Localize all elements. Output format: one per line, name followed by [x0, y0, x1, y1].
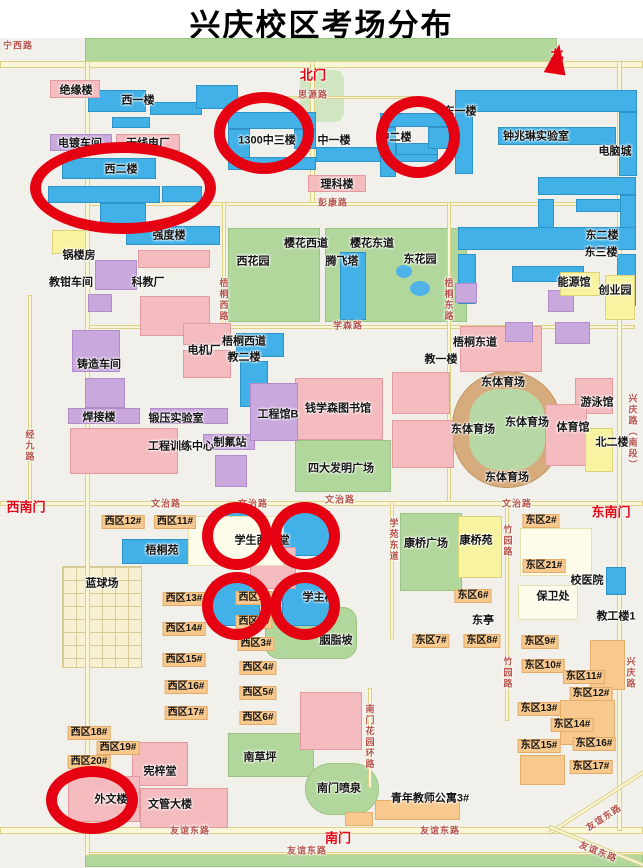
building-label: 文管大楼 [148, 800, 192, 811]
dorm-label: 东区11# [563, 670, 605, 684]
building-label: 东亭 [472, 616, 494, 627]
dorm-label: 东区13# [518, 702, 561, 716]
dorm-label: 西区19# [97, 741, 140, 755]
dorm-label: 东区16# [573, 737, 616, 751]
building-label: 科教厂 [132, 278, 165, 289]
building [132, 742, 188, 786]
dorm-label: 东区7# [412, 634, 449, 648]
building-label: 梧桐东道 [453, 338, 497, 349]
road-label: 学森路 [333, 322, 363, 331]
building-label: 东三楼 [585, 248, 618, 259]
road-label: 文治路 [325, 496, 355, 505]
road-label: 文治路 [151, 500, 181, 509]
building-label: 锻压实验室 [149, 414, 204, 425]
map-area [85, 854, 643, 867]
building-label: 腾飞塔 [326, 257, 359, 268]
building-label: 强度楼 [153, 231, 186, 242]
building-label: 东体育场 [505, 418, 549, 429]
building [576, 199, 622, 212]
building [555, 322, 590, 344]
dorm-label: 西区15# [163, 653, 206, 667]
highlight-circle [270, 502, 340, 570]
dorm-label: 东区12# [570, 687, 613, 701]
building-label: 电机厂 [188, 346, 221, 357]
building-label: 焊接楼 [83, 413, 116, 424]
building-label: 教二楼 [228, 353, 261, 364]
dorm-label: 东区2# [522, 514, 559, 528]
building-label: 康桥广场 [404, 539, 448, 550]
dorm-label: 西区4# [239, 661, 276, 675]
building [538, 177, 636, 195]
road-label: 思源路 [298, 91, 328, 100]
building [300, 692, 362, 750]
dorm-label: 西区12# [102, 515, 145, 529]
gate-label: 北门 [300, 69, 326, 82]
highlight-circle [46, 766, 138, 834]
road-label: 彭康路 [318, 199, 348, 208]
building-label: 西一楼 [122, 96, 155, 107]
road-label: 经九路 [25, 430, 34, 463]
building-label: 南草坪 [244, 753, 277, 764]
dorm-label: 东区14# [551, 718, 594, 732]
building-label: 蓝球场 [86, 579, 119, 590]
building-label: 校医院 [571, 576, 604, 587]
building [619, 112, 637, 176]
road-label: 友谊东路 [287, 847, 327, 856]
north-arrow-icon [544, 42, 570, 75]
dorm-label: 东区9# [521, 635, 558, 649]
building [605, 275, 635, 320]
dorm-label: 东区8# [463, 634, 500, 648]
building [585, 428, 613, 472]
road-label: 竹园路 [503, 525, 512, 558]
building [455, 90, 637, 112]
building-label: 能源馆 [558, 278, 591, 289]
building [545, 404, 587, 466]
building-label: 东体育场 [451, 425, 495, 436]
gate-label: 西南门 [6, 501, 45, 514]
gate-label: 东南门 [591, 506, 630, 519]
building-label: 工程馆B [258, 410, 299, 421]
dorm-label: 东区15# [518, 739, 561, 753]
dorm-label: 西区14# [163, 622, 206, 636]
building-label: 东体育场 [481, 378, 525, 389]
building-label: 西花园 [237, 257, 270, 268]
building [88, 294, 112, 312]
road-label: 宁西路 [3, 42, 33, 51]
building-label: 东二楼 [586, 231, 619, 242]
highlight-circle [214, 92, 314, 174]
dorm-label: 东区10# [522, 659, 565, 673]
building [606, 567, 626, 595]
building-label: 中一楼 [318, 136, 351, 147]
road-label: 兴庆路（南段） [628, 394, 637, 471]
building-label: 钱学森图书馆 [305, 404, 371, 415]
building [505, 322, 533, 342]
highlight-circle [270, 572, 340, 640]
map-area [410, 281, 430, 296]
campus-map: 绝缘楼西一楼电镀车间无线电厂1300中三楼中一楼中二楼东一楼钟兆琳实验室电脑城西… [0, 38, 643, 868]
building-label: 东花园 [404, 255, 437, 266]
building-label: 锅楼房 [63, 251, 96, 262]
road-label: 文治路 [502, 500, 532, 509]
building [392, 420, 454, 468]
building [458, 516, 502, 578]
building-label: 南门喷泉 [317, 784, 361, 795]
dorm-label: 东区6# [454, 589, 491, 603]
building-label: 东体育场 [485, 473, 529, 484]
building-label: 胭脂坡 [320, 636, 353, 647]
dorm-label: 西区18# [68, 726, 111, 740]
building-label: 制氟站 [214, 438, 247, 449]
building-label: 樱花西道 [284, 239, 328, 250]
road-label: 梧桐东路 [444, 278, 453, 322]
building [85, 378, 125, 408]
building-label: 四大发明广场 [308, 464, 374, 475]
road-label: 友谊东路 [420, 827, 460, 836]
building-label: 青年教师公寓3# [391, 794, 469, 805]
dorm-label: 西区13# [163, 592, 206, 606]
gate-label: 南门 [325, 832, 351, 845]
building-label: 工程训练中心 [148, 442, 214, 453]
building-label: 教钳车间 [49, 278, 93, 289]
building-label: 梧桐苑 [146, 546, 179, 557]
building [150, 102, 202, 115]
building-label: 体育馆 [557, 423, 590, 434]
dorm-label: 西区11# [154, 515, 196, 529]
building-label: 北二楼 [596, 438, 629, 449]
building-label: 电脑城 [599, 147, 632, 158]
building-label: 创业园 [599, 286, 632, 297]
dorm-label: 东区17# [570, 760, 613, 774]
map-area [396, 265, 412, 278]
building-label: 康桥苑 [460, 536, 493, 547]
road-label: 学苑东道 [389, 518, 398, 562]
highlight-circle [376, 96, 460, 178]
building-label: 樱花东道 [350, 239, 394, 250]
building-label: 钟兆琳实验室 [503, 132, 569, 143]
building-label: 铸造车间 [77, 360, 121, 371]
road-label: 梧桐西路 [219, 278, 228, 322]
building [520, 755, 565, 785]
building-label: 绝缘楼 [60, 86, 93, 97]
map-area [400, 513, 462, 591]
road-label: 友谊东路 [170, 827, 210, 836]
dorm-label: 西区6# [239, 711, 276, 725]
highlight-circle [30, 142, 216, 234]
dorm-label: 西区16# [165, 680, 208, 694]
road-label: 竹园路 [503, 657, 512, 690]
building-label: 梧桐西道 [222, 337, 266, 348]
screenshot: 兴庆校区考场分布 绝缘楼西一楼电镀车间无线电厂1300中三楼中一楼中二楼东一楼钟… [0, 0, 643, 868]
building-label: 理科楼 [321, 180, 354, 191]
dorm-label: 东区21# [523, 559, 566, 573]
building [112, 117, 150, 128]
highlight-circle [202, 572, 272, 640]
building-label: 教一楼 [425, 355, 458, 366]
highlight-circle [202, 502, 272, 570]
building-label: 教工楼1 [596, 612, 635, 623]
road-label: 兴庆路 [626, 657, 635, 690]
building [455, 283, 477, 303]
building [215, 455, 247, 487]
building-label: 保卫处 [537, 592, 570, 603]
building-label: 宪梓堂 [144, 767, 177, 778]
building-label: 游泳馆 [581, 398, 614, 409]
road [85, 852, 643, 855]
road [28, 295, 32, 505]
building [392, 372, 450, 414]
dorm-label: 西区17# [165, 706, 208, 720]
building [138, 250, 210, 268]
dorm-label: 西区5# [239, 686, 276, 700]
road-label: 南门花园环路 [365, 704, 374, 770]
building [345, 812, 373, 826]
